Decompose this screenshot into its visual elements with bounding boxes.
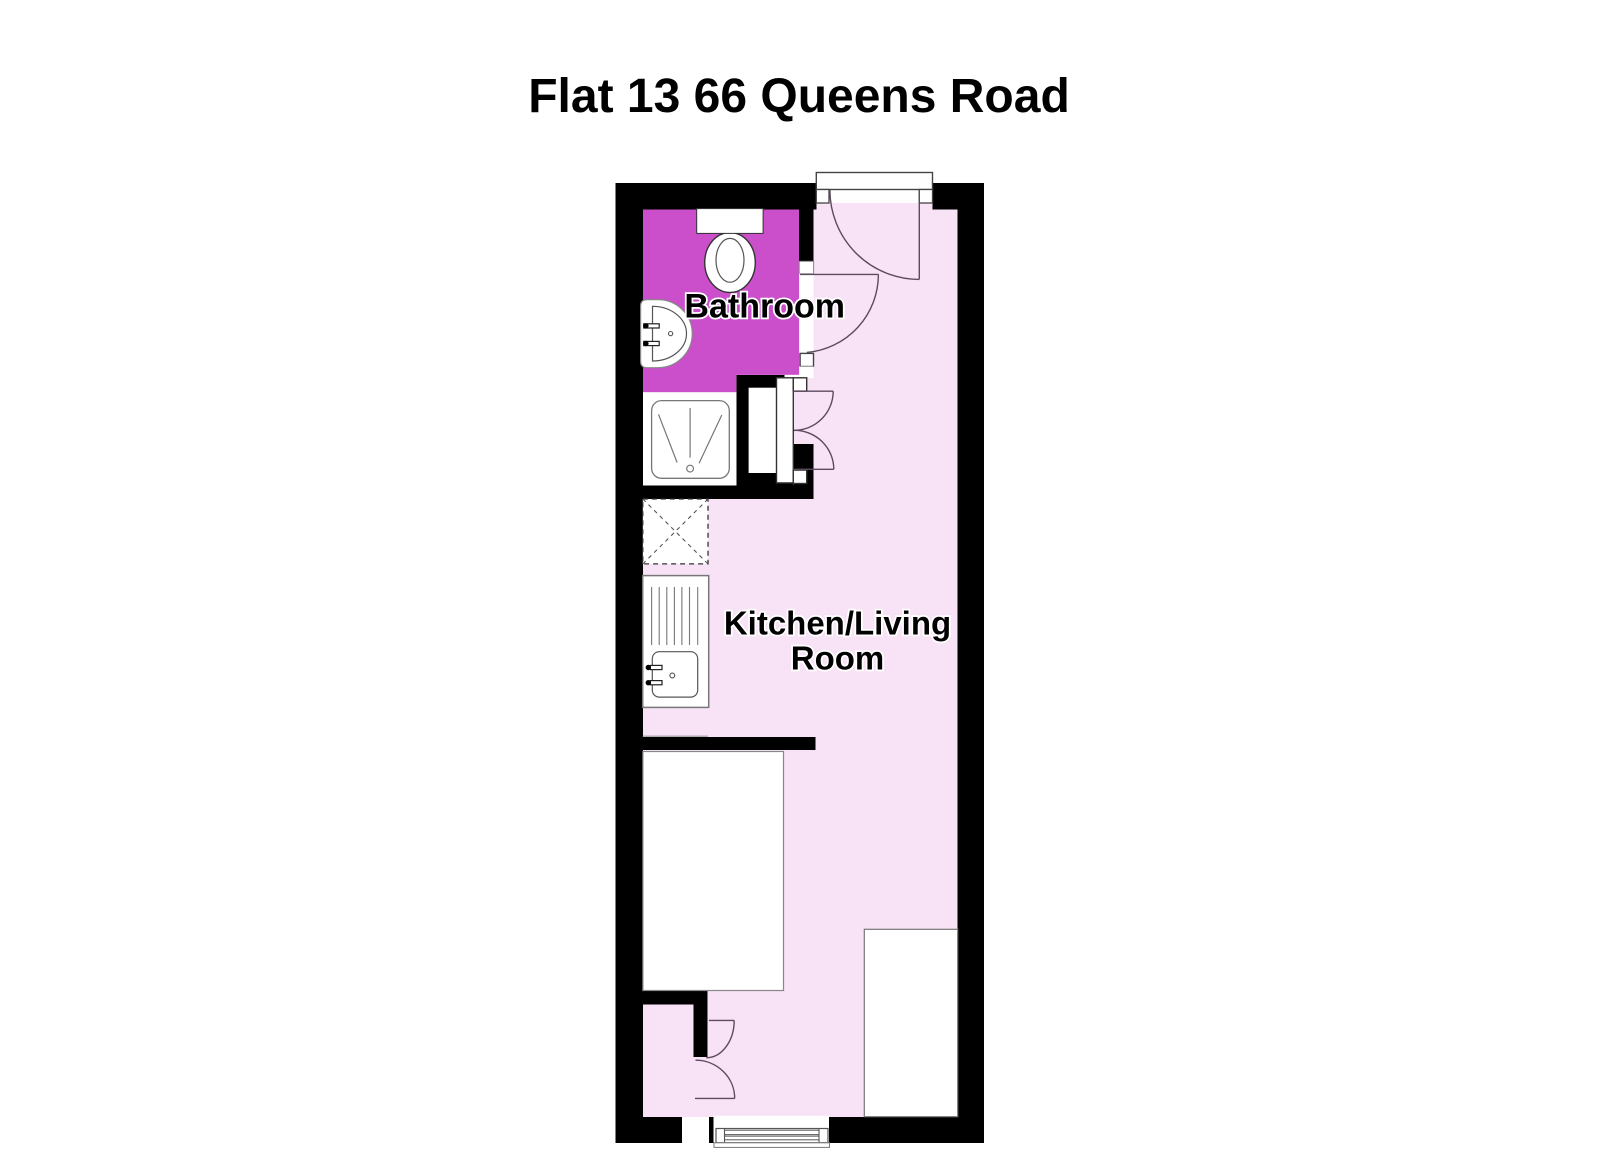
svg-text:Kitchen/Living: Kitchen/Living — [724, 605, 951, 642]
svg-text:Room: Room — [791, 640, 885, 677]
svg-text:Bathroom: Bathroom — [684, 288, 845, 326]
svg-text:Flat 13 66 Queens Road: Flat 13 66 Queens Road — [528, 70, 1070, 123]
